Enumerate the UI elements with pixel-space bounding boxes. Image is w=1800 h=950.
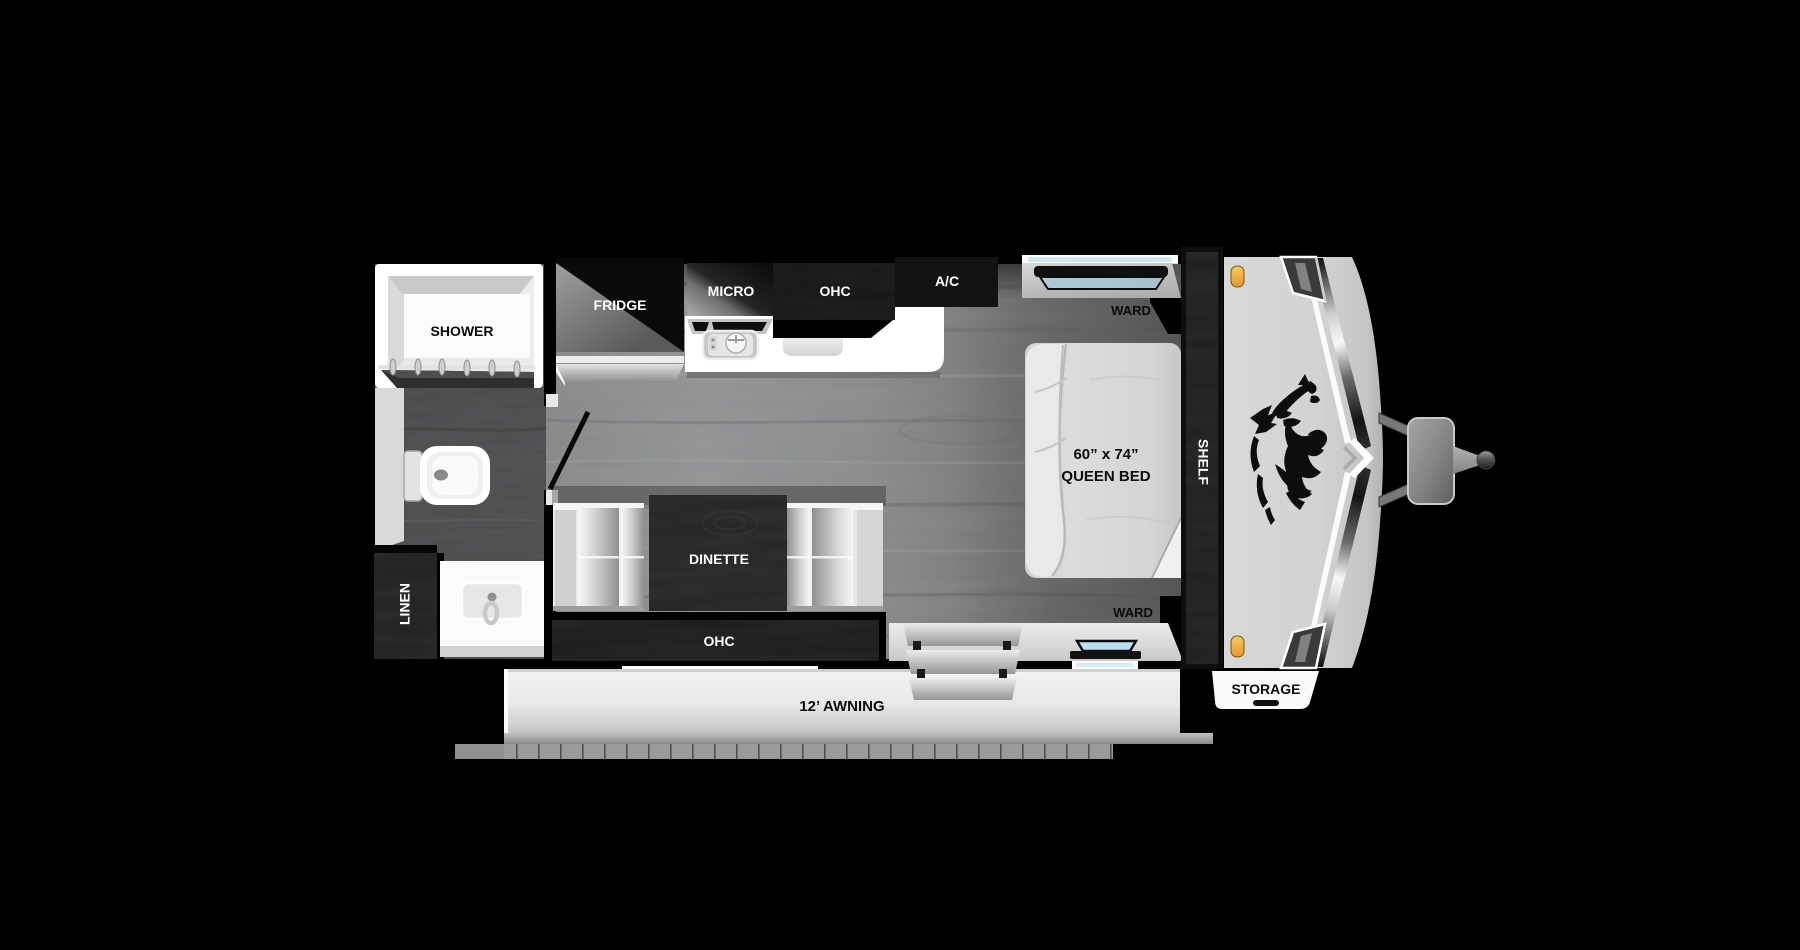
svg-text:SHOWER: SHOWER bbox=[431, 323, 494, 339]
svg-text:OHC: OHC bbox=[703, 633, 734, 649]
svg-text:FRIDGE: FRIDGE bbox=[594, 297, 647, 313]
svg-text:OHC: OHC bbox=[819, 283, 850, 299]
svg-text:SHELF: SHELF bbox=[1195, 439, 1211, 485]
svg-text:60” x 74”: 60” x 74” bbox=[1073, 446, 1138, 463]
svg-text:12’ AWNING: 12’ AWNING bbox=[799, 698, 884, 715]
svg-text:MICRO: MICRO bbox=[708, 283, 755, 299]
svg-text:STORAGE: STORAGE bbox=[1232, 681, 1301, 697]
svg-text:QUEEN BED: QUEEN BED bbox=[1061, 468, 1150, 485]
svg-text:WARD: WARD bbox=[1113, 605, 1153, 620]
svg-text:DINETTE: DINETTE bbox=[689, 551, 749, 567]
svg-text:LINEN: LINEN bbox=[397, 583, 413, 625]
